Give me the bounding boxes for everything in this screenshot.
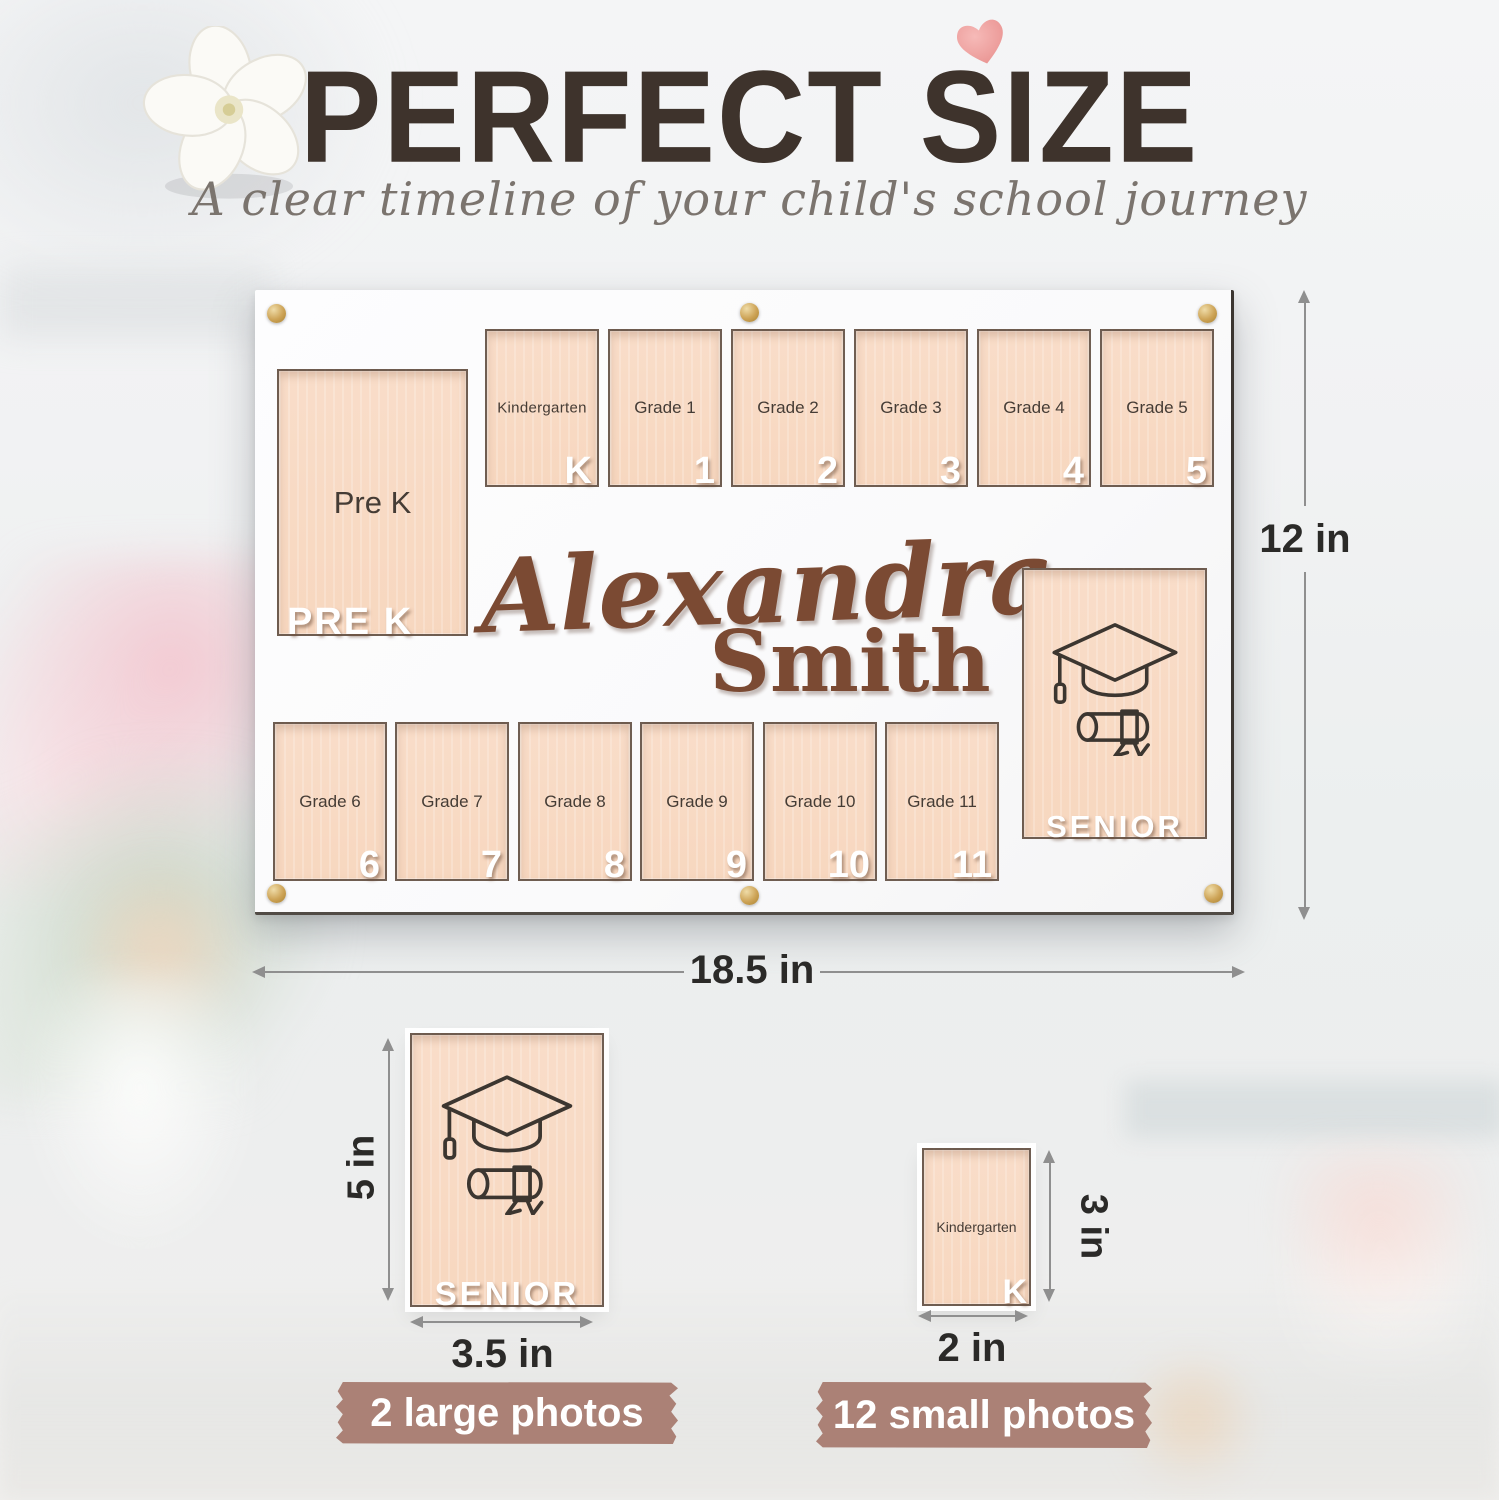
product-infographic: PERFECT SIZE A clear timeline of your ch… <box>0 0 1499 1500</box>
slot-cutout-letters: K <box>1002 1273 1027 1312</box>
photo-frame-board: Pre K PRE K Kindergarten K Grade 1 1 Gra… <box>255 290 1234 915</box>
slot-cutout-letters: 4 <box>1063 450 1084 493</box>
photo-slot-kindergarten: Kindergarten K <box>485 329 599 487</box>
slot-label: Grade 5 <box>1102 398 1212 418</box>
slot-cutout-letters: 10 <box>828 844 870 887</box>
mounting-pin-top-right <box>1198 304 1217 323</box>
background-vase <box>25 975 255 1255</box>
slot-label: Grade 9 <box>642 792 752 812</box>
dimension-line <box>263 971 684 973</box>
photo-slot-grade-10: Grade 10 10 <box>763 722 877 881</box>
background-blur-wall-band <box>0 268 270 338</box>
small-photo-width-label: 2 in <box>897 1326 1047 1371</box>
background-counter <box>0 1285 1499 1500</box>
slot-cutout-letters: SENIOR <box>1024 809 1205 845</box>
slot-cutout-letters: 2 <box>817 450 838 493</box>
dimension-arrowhead <box>382 1288 394 1301</box>
photo-slot-grade-11: Grade 11 11 <box>885 722 999 881</box>
dimension-line <box>1304 572 1306 908</box>
slot-label: Pre K <box>279 485 466 521</box>
photo-slot-grade-2: Grade 2 2 <box>731 329 845 487</box>
background-flowers-peach <box>55 855 265 1045</box>
slot-label: Grade 3 <box>856 398 966 418</box>
slot-cutout-letters: PRE K <box>287 601 413 644</box>
graduation-cap-icon <box>1044 618 1186 756</box>
slot-label: Kindergarten <box>924 1219 1029 1235</box>
slot-label: Grade 11 <box>887 792 997 812</box>
mounting-pin-top-left <box>267 304 286 323</box>
dimension-line <box>1304 301 1306 506</box>
slot-cutout-letters: 3 <box>940 450 961 493</box>
photo-slot-grade-9: Grade 9 9 <box>640 722 754 881</box>
slot-cutout-letters: 8 <box>604 844 625 887</box>
background-pitcher-flowers <box>1285 1150 1470 1370</box>
slot-label: Grade 4 <box>979 398 1089 418</box>
dimension-line <box>929 1315 1015 1317</box>
mounting-pin-top-middle <box>740 303 759 322</box>
slot-cutout-letters: 6 <box>359 844 380 887</box>
photo-slot-grade-8: Grade 8 8 <box>518 722 632 881</box>
photo-slot-grade-1: Grade 1 1 <box>608 329 722 487</box>
slot-label: Kindergarten <box>487 400 597 417</box>
slot-cutout-letters: 9 <box>726 844 747 887</box>
dimension-arrowhead <box>1298 907 1310 920</box>
photo-slot-grade-6: Grade 6 6 <box>273 722 387 881</box>
slot-label: Grade 10 <box>765 792 875 812</box>
dimension-arrowhead <box>1015 1310 1028 1322</box>
dimension-line <box>421 1321 581 1323</box>
photo-slot-grade-3: Grade 3 3 <box>854 329 968 487</box>
graduation-cap-icon <box>435 1069 579 1215</box>
dimension-line <box>1049 1161 1051 1290</box>
slot-label: Grade 7 <box>397 792 507 812</box>
slot-cutout-letters: SENIOR <box>412 1275 602 1313</box>
slot-label: Grade 2 <box>733 398 843 418</box>
slot-cutout-letters: 11 <box>952 844 992 887</box>
slot-label: Grade 1 <box>610 398 720 418</box>
frame-width-label: 18.5 in <box>687 948 817 993</box>
photo-slot-grade-7: Grade 7 7 <box>395 722 509 881</box>
dimension-arrowhead <box>1043 1289 1055 1302</box>
slot-cutout-letters: 5 <box>1186 450 1207 493</box>
dimension-arrowhead <box>580 1316 593 1328</box>
background-shelf-edge <box>1125 1080 1499 1138</box>
mounting-pin-bottom-right <box>1204 884 1223 903</box>
photo-slot-senior: SENIOR <box>1022 568 1207 839</box>
photo-slot-grade-5: Grade 5 5 <box>1100 329 1214 487</box>
page-title: PERFECT SIZE <box>22 41 1476 192</box>
slot-cutout-letters: 7 <box>481 844 502 887</box>
slot-label: Grade 6 <box>275 792 385 812</box>
small-photo-height-label: 3 in <box>1072 1181 1115 1273</box>
mounting-pin-bottom-left <box>267 884 286 903</box>
photo-slot-pre-k: Pre K PRE K <box>277 369 468 636</box>
large-photo-tape-label: 2 large photos <box>336 1382 678 1444</box>
child-last-name: Smith <box>695 612 1005 711</box>
large-photo-height-label: 5 in <box>341 1122 384 1214</box>
slot-cutout-letters: K <box>565 450 592 493</box>
photo-slot-grade-4: Grade 4 4 <box>977 329 1091 487</box>
small-photo-tape-label: 12 small photos <box>816 1382 1152 1448</box>
dimension-line <box>820 971 1232 973</box>
page-subtitle: A clear timeline of your child's school … <box>0 172 1499 226</box>
dimension-arrowhead <box>1232 966 1245 978</box>
large-photo-detail: SENIOR <box>410 1033 604 1307</box>
large-photo-width-label: 3.5 in <box>415 1332 590 1377</box>
mounting-pin-bottom-middle <box>740 886 759 905</box>
slot-cutout-letters: 1 <box>694 450 715 493</box>
small-photo-detail: Kindergarten K <box>922 1148 1031 1306</box>
dimension-line <box>388 1049 390 1289</box>
frame-height-label: 12 in <box>1245 517 1365 562</box>
slot-label: Grade 8 <box>520 792 630 812</box>
